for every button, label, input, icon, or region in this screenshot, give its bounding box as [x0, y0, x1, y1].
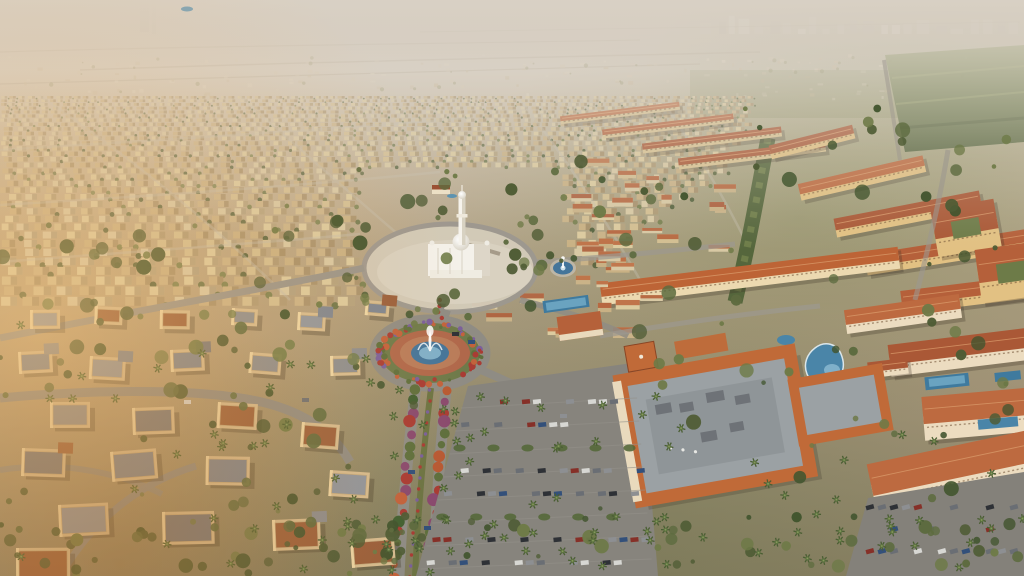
- mall-pavilion: [557, 311, 604, 341]
- scene-canvas: [0, 0, 1024, 576]
- aerial-render: [0, 0, 1024, 576]
